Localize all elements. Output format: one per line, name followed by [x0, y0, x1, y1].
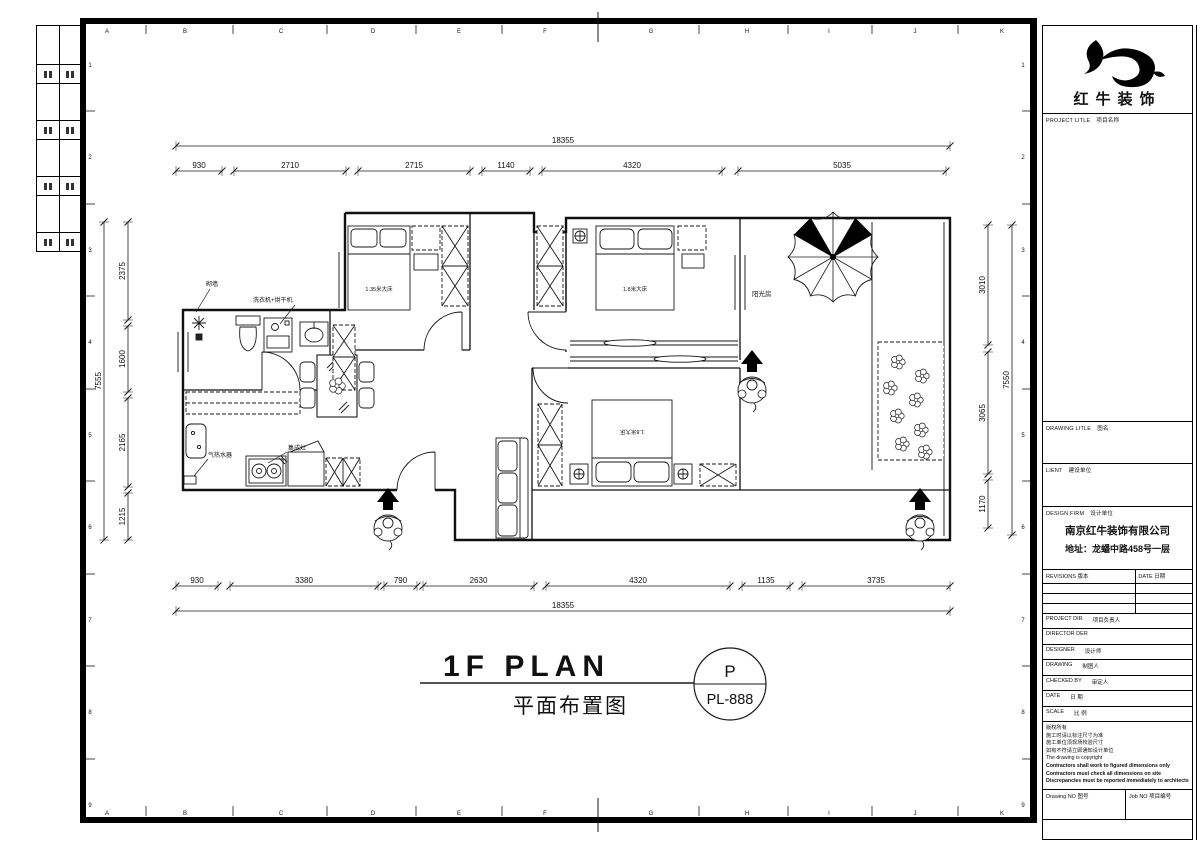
small-box — [184, 476, 196, 484]
title-block: 红牛装饰 PROJECT LITLE项目名称 DRAWING LITLE图名 L… — [1042, 25, 1193, 840]
bed-middle — [596, 226, 674, 310]
stool — [682, 254, 704, 268]
grid-letter: K — [1000, 811, 1004, 817]
grid-number: 2 — [88, 155, 92, 161]
title-block-row: DRAWING制图人 — [1043, 659, 1192, 674]
grid-number: 4 — [88, 340, 92, 346]
patio-umbrella — [788, 212, 878, 302]
leader-line — [196, 289, 210, 312]
gas-stove — [246, 456, 287, 486]
signature-rows: PROJECT DIR项目负责人 DIRECTOR DER DESIGNER设计… — [1043, 613, 1192, 721]
title-block-row: DIRECTOR DER — [1043, 628, 1192, 643]
grid-letter: E — [457, 29, 461, 35]
dimension-label: 930 — [190, 576, 204, 585]
dimension-label: 5035 — [833, 161, 851, 170]
grid-number: 5 — [88, 433, 92, 439]
client-label-cn: 建设单位 — [1069, 468, 1092, 474]
grid-number: 4 — [1021, 340, 1025, 346]
grid-letter: C — [279, 811, 284, 817]
revision-row — [1043, 604, 1192, 613]
grid-letter: F — [543, 811, 547, 817]
grid-letter: G — [649, 29, 654, 35]
dimension-label: 930 — [192, 161, 206, 170]
nightstand — [414, 254, 438, 270]
dimension-label: 7555 — [94, 372, 103, 390]
sliding-doors — [570, 340, 738, 362]
title-block-row: DATE日 期 — [1043, 690, 1192, 705]
cabinet-hatched — [326, 458, 360, 486]
label-new-wall: 砌墙 — [206, 280, 218, 288]
entry-viewer-symbol — [738, 350, 766, 412]
drawing-no-cn: 图号 — [1077, 794, 1088, 800]
logo-text: 红牛装饰 — [1073, 88, 1161, 109]
grid-number: 8 — [88, 710, 92, 716]
grid-number: 1 — [88, 63, 92, 69]
copyright-notes: 版权所有 施工时请以标注尺寸为准 施工单位须现场校验尺寸 如有不符请立即通知设计… — [1043, 721, 1192, 789]
revisions-label-en: REVISIONS — [1046, 574, 1076, 580]
title-bubble-letter: P — [724, 662, 735, 681]
drawing-number-section: Drawing NO 图号 Job NO 项目编号 — [1043, 789, 1192, 819]
grid-letter: A — [105, 811, 109, 817]
leader-line — [194, 459, 208, 476]
floor-plan-drawing: 1835593027102715114043205035930338079026… — [0, 0, 1200, 844]
cabinet-hatched — [700, 464, 736, 486]
firm-label-cn: 设计单位 — [1090, 511, 1113, 517]
dimension-label: 2165 — [118, 433, 127, 451]
washer-dryer — [264, 318, 292, 352]
label-bed-left: 1.35米大床 — [365, 285, 393, 293]
hall-closet — [537, 226, 563, 306]
grid-number: 5 — [1021, 433, 1025, 439]
wardrobe-bottom-bedroom — [538, 404, 562, 486]
job-no-en: Job NO — [1129, 794, 1148, 800]
dimension-label: 3380 — [295, 576, 313, 585]
toilet — [236, 316, 260, 351]
grid-letter: J — [914, 811, 917, 817]
firm-label-en: DESIGN FIRM — [1046, 511, 1084, 517]
grid-letter: F — [543, 29, 547, 35]
dresser — [678, 226, 706, 250]
label-water-heater: 气热水器 — [208, 451, 232, 459]
logo-section: 红牛装饰 — [1043, 26, 1192, 113]
nightstand — [570, 464, 588, 484]
bed-bottom — [592, 400, 672, 486]
revision-row — [1043, 594, 1192, 604]
dimension-label: 2715 — [405, 161, 423, 170]
title-block-row: CHECKED BY审定人 — [1043, 675, 1192, 690]
entry-viewer-symbol — [374, 488, 402, 550]
grid-letter: I — [828, 29, 830, 35]
title-block-row: SCALE比 例 — [1043, 706, 1192, 721]
grid-number: 8 — [1021, 710, 1025, 716]
dimension-label: 18355 — [552, 136, 575, 145]
title-block-row: PROJECT DIR项目负责人 — [1043, 614, 1192, 628]
grid-number: 6 — [1021, 525, 1025, 531]
grid-number: 3 — [1021, 248, 1025, 254]
dimension-label: 3010 — [978, 276, 987, 294]
grid-number: 6 — [88, 525, 92, 531]
water-heater — [186, 424, 206, 458]
drawing-title-group: 1F PLAN 平面布置图 P PL-888 — [420, 648, 766, 720]
grid-letter: I — [828, 811, 830, 817]
dimension-label: 1600 — [118, 350, 127, 368]
grid-letter: A — [105, 29, 109, 35]
firm-name: 南京红牛装饰有限公司 — [1043, 523, 1192, 538]
dimension-label: 3735 — [867, 576, 885, 585]
revisions-label-cn: 版本 — [1077, 574, 1088, 580]
drawing-label-en: DRAWING LITLE — [1046, 426, 1091, 432]
grid-letter: J — [914, 29, 917, 35]
wardrobe-left-bedroom — [442, 226, 468, 306]
design-firm-section: DESIGN FIRM设计单位 南京红牛装饰有限公司 地址：龙蟠中路458号一层 — [1043, 506, 1192, 569]
firm-address: 地址：龙蟠中路458号一层 — [1043, 542, 1192, 555]
revision-row — [1043, 584, 1192, 594]
grid-letter: D — [371, 29, 376, 35]
drawing-title-section: DRAWING LITLE图名 — [1043, 421, 1192, 463]
drawing-label-cn: 图名 — [1097, 426, 1108, 432]
nightstand — [412, 226, 440, 250]
label-washer-dryer: 洗衣机+烘干机 — [253, 296, 293, 304]
date-col-cn: 日期 — [1154, 574, 1165, 580]
project-label-cn: 项目名称 — [1096, 118, 1119, 124]
rednow-logo-icon — [1058, 34, 1178, 92]
dimension-label: 1135 — [757, 576, 775, 585]
grid-letter: G — [649, 811, 654, 817]
drawing-no-en: Drawing NO — [1046, 794, 1076, 800]
dimension-label: 2710 — [281, 161, 299, 170]
dimension-label: 2375 — [118, 262, 127, 280]
drawing-title-cn: 平面布置图 — [513, 695, 628, 718]
shower — [192, 316, 206, 340]
grid-letter: K — [1000, 29, 1004, 35]
title-block-row: DESIGNER设计师 — [1043, 644, 1192, 659]
project-label-en: PROJECT LITLE — [1046, 118, 1090, 124]
client-section: LIENT建设单位 — [1043, 463, 1192, 506]
revisions-table: REVISIONS 版本 DATE 日期 — [1043, 569, 1192, 613]
grid-number: 9 — [88, 803, 92, 809]
grid-number: 1 — [1021, 63, 1025, 69]
dimension-label: 2630 — [470, 576, 488, 585]
dimension-label: 3065 — [978, 404, 987, 422]
grid-letter: H — [745, 29, 749, 35]
grid-letter: C — [279, 29, 284, 35]
dimension-label: 1140 — [497, 161, 515, 170]
vanity-sink — [300, 322, 328, 346]
ceiling-symbol — [573, 229, 587, 243]
grid-letter: D — [371, 811, 376, 817]
job-no-cn: 项目编号 — [1149, 794, 1171, 800]
cad-sheet: 1835593027102715114043205035930338079026… — [0, 0, 1200, 844]
grid-number: 3 — [88, 248, 92, 254]
label-bed-middle: 1.8米大床 — [623, 285, 648, 293]
client-label-en: LIENT — [1046, 468, 1063, 474]
dimension-label: 4320 — [629, 576, 647, 585]
grid-number: 7 — [88, 618, 92, 624]
drawing-title-en: 1F PLAN — [443, 650, 610, 683]
title-bubble-code: PL-888 — [707, 692, 754, 708]
label-sunroom: 阳光房 — [752, 289, 772, 298]
grid-number: 9 — [1021, 803, 1025, 809]
dimension-label: 7550 — [1002, 371, 1011, 389]
grid-letter: H — [745, 811, 749, 817]
dimension-label: 1170 — [978, 495, 987, 513]
dimension-label: 4320 — [623, 161, 641, 170]
dimension-label: 790 — [394, 576, 408, 585]
grid-letter: E — [457, 811, 461, 817]
sofa — [496, 438, 528, 538]
grid-letter: B — [183, 29, 187, 35]
grid-number: 7 — [1021, 618, 1025, 624]
dimension-label: 18355 — [552, 601, 575, 610]
grid-number: 2 — [1021, 155, 1025, 161]
label-integrated-stove: 集成灶 — [288, 444, 306, 452]
nightstand — [674, 464, 692, 484]
dimension-label: 1215 — [118, 507, 127, 525]
project-title-section: PROJECT LITLE项目名称 — [1043, 113, 1192, 421]
title-block-tail — [1043, 819, 1192, 841]
date-col-en: DATE — [1138, 574, 1152, 580]
bed-left — [348, 226, 410, 310]
grid-letter: B — [183, 811, 187, 817]
label-bed-bottom: 1.8米大床 — [619, 428, 644, 436]
